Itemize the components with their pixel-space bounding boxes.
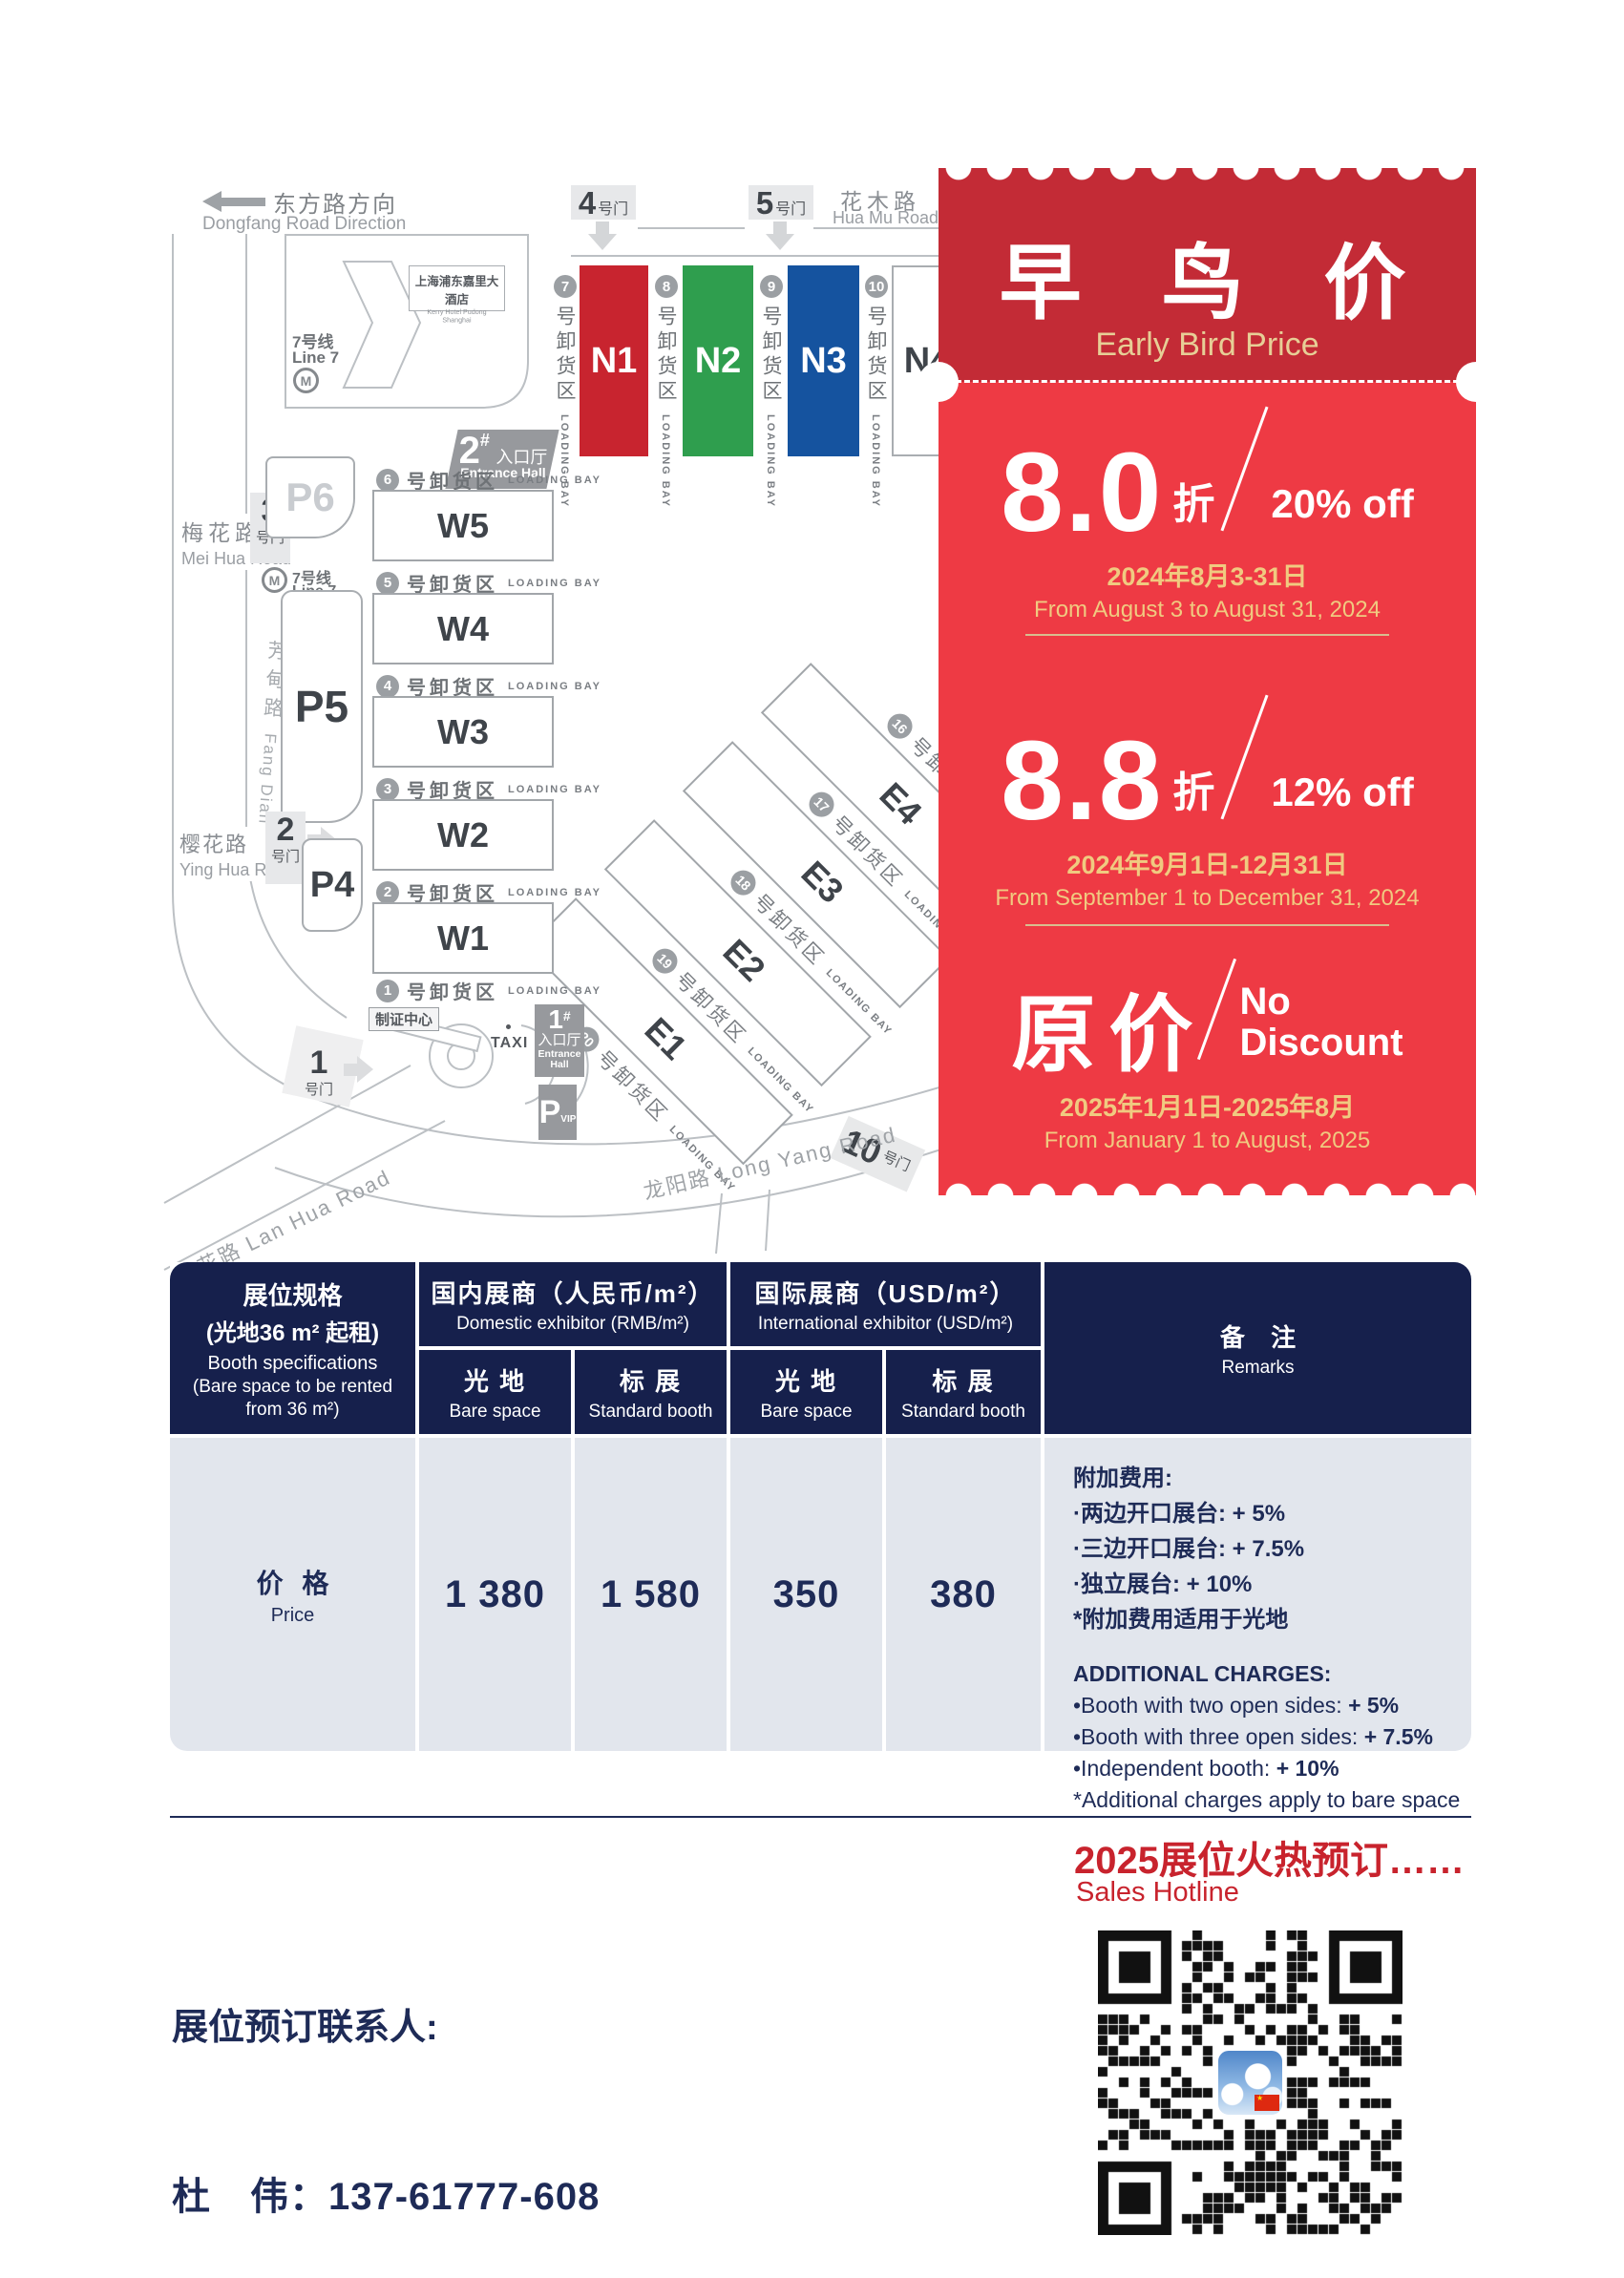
loading-bay-1-row: 1号卸货区LOADING BAY [376, 977, 601, 1004]
tier1-date-en: From August 3 to August 31, 2024 [939, 597, 1476, 623]
tier1-date-zh: 2024年8月3-31日 [939, 556, 1476, 593]
huamu-road-label-en: Hua Mu Road [833, 208, 939, 228]
hall-w3: W3 [372, 696, 554, 768]
hotel-name-en: Kerry Hotel Pudong Shanghai [411, 307, 501, 324]
tier2-off: 12% off [1271, 770, 1413, 815]
coupon-header: 早 鸟 价 Early Bird Price [939, 168, 1476, 382]
price-international-standard: 380 [886, 1438, 1041, 1751]
coupon-divider-1 [1025, 634, 1389, 636]
entrance-1-label-en: Entrance Hall [535, 1049, 584, 1071]
coupon-body: 8.0 折 20% off 2024年8月3-31日 From August 3… [939, 382, 1476, 1195]
entrance-2-label-zh: 入口厅 [496, 448, 547, 467]
china-flag-icon: ★ [1255, 2095, 1279, 2111]
parking-p6: P6 [265, 456, 355, 538]
hall-n3: N3 [788, 265, 859, 456]
tier1-discount: 8.0 [1001, 445, 1163, 540]
bay-8-number: 8 [655, 275, 678, 298]
booth-specs-header: 展位规格 (光地36 m² 起租) Booth specifications (… [170, 1262, 415, 1434]
coupon-notch-left [918, 362, 959, 402]
international-exhibitor-header: 国际展商（USD/m²） International exhibitor (US… [730, 1262, 1041, 1346]
price-domestic-bare: 1 380 [419, 1438, 571, 1751]
dongfang-road-label-en: Dongfang Road Direction [202, 214, 406, 235]
coupon-title-zh: 早 鸟 价 [939, 216, 1476, 335]
dongfang-direction-arrow-icon [202, 191, 265, 212]
tier2-date-en: From September 1 to December 31, 2024 [939, 885, 1476, 912]
coupon-notch-right [1456, 362, 1496, 402]
venue-map: E4 E3 E2 E1 16 17 18 19 20 号卸货区 号卸货区 [170, 170, 945, 1215]
bay-9-number: 9 [760, 275, 783, 298]
line7-label-en: Line 7 [292, 348, 339, 368]
footer-divider [170, 1816, 1471, 1818]
tier2-slash-icon [1221, 695, 1269, 820]
bay-9-label: 号卸货区LOADING BAY [761, 306, 781, 621]
gate-2: 2号门 [265, 812, 306, 884]
taxi-label: TAXI [491, 1035, 528, 1052]
hall-w2: W2 [372, 799, 554, 871]
tier2-discount: 8.8 [1001, 733, 1163, 829]
sales-hotline-subtitle: Sales Hotline [1076, 1877, 1239, 1909]
qr-center-logo: ★ [1215, 2048, 1285, 2118]
domestic-standard-booth-header: 标 展Standard booth [575, 1350, 727, 1434]
tier3-date-zh: 2025年1月1日-2025年8月 [939, 1086, 1476, 1124]
parking-p5: P5 [281, 590, 363, 823]
tier3-label: 原价 [1011, 1000, 1206, 1071]
gate-5: 5 号门 [749, 185, 813, 220]
kerry-hotel-label: 上海浦东嘉里大酒店 Kerry Hotel Pudong Shanghai [409, 265, 505, 311]
gate-5-suffix: 号门 [775, 196, 806, 219]
gate-5-arrow-icon [766, 221, 794, 250]
gate-4-number: 4 [579, 187, 596, 219]
taxi-dot-icon [506, 1024, 511, 1029]
coupon-perforation-line [939, 380, 1476, 383]
note-line: *附加费用适用于光地 [1073, 1602, 1462, 1637]
gate-1-arrow-icon [344, 1056, 373, 1083]
note-line: ·两边开口展台: + 5% [1073, 1496, 1462, 1531]
booking-contact-label: 展位预订联系人: [172, 1997, 438, 2050]
tier-early-bird-2: 8.8 折 12% off 2024年9月1日-12月31日 From Sept… [939, 686, 1476, 912]
note-line: •Booth with three open sides: + 7.5% [1073, 1721, 1462, 1753]
domestic-exhibitor-header: 国内展商（人民币/m²） Domestic exhibitor (RMB/m²) [419, 1262, 727, 1346]
tier1-zhe: 折 [1172, 470, 1214, 531]
gate-4-suffix: 号门 [598, 196, 628, 219]
remarks-body: 附加费用: ·两边开口展台: + 5% ·三边开口展台: + 7.5% ·独立展… [1044, 1438, 1471, 1751]
hotel-name-zh: 上海浦东嘉里大酒店 [410, 271, 504, 307]
tier3-date-en: From January 1 to August, 2025 [939, 1128, 1476, 1154]
note-line: ·三边开口展台: + 7.5% [1073, 1531, 1462, 1567]
vip-parking: PVIP [538, 1085, 577, 1140]
metro-line7-icon: M [293, 368, 319, 393]
remarks-header: 备 注 Remarks [1044, 1262, 1471, 1434]
hall-w5: W5 [372, 490, 554, 561]
bay-10-label: 号卸货区LOADING BAY [866, 306, 886, 621]
coupon-title-en: Early Bird Price [939, 327, 1476, 364]
price-domestic-standard: 1 580 [575, 1438, 727, 1751]
bay-7-number: 7 [554, 275, 577, 298]
hall-n1: N1 [580, 265, 648, 456]
coupon-divider-2 [1025, 924, 1389, 926]
wechat-qr-code: ★ [1098, 1930, 1403, 2235]
badge-center-label: 制证中心 [369, 1007, 439, 1031]
tier1-slash-icon [1221, 407, 1269, 532]
tier2-date-zh: 2024年9月1日-12月31日 [939, 844, 1476, 881]
tier1-off: 20% off [1271, 481, 1413, 527]
tier-early-bird-1: 8.0 折 20% off 2024年8月3-31日 From August 3… [939, 397, 1476, 623]
tier3-no-discount: No Discount [1239, 981, 1403, 1064]
parking-p4: P4 [302, 838, 363, 932]
metro-line7-lower-icon: M [262, 567, 287, 593]
bay-10-number: 10 [865, 275, 888, 298]
hall-w1: W1 [372, 902, 554, 974]
early-bird-coupon: 早 鸟 价 Early Bird Price 8.0 折 20% off 202… [939, 168, 1476, 1195]
hall-n2: N2 [683, 265, 753, 456]
gate-4-arrow-icon [588, 221, 617, 250]
entrance-1-label-zh: 入口厅 [535, 1033, 584, 1049]
pricing-table: 展位规格 (光地36 m² 起租) Booth specifications (… [170, 1262, 1471, 1751]
note-line: •Independent booth: + 10% [1073, 1753, 1462, 1784]
note-line: ·独立展台: + 10% [1073, 1567, 1462, 1602]
tier2-zhe: 折 [1172, 758, 1214, 819]
additional-charges-en-title: ADDITIONAL CHARGES: [1073, 1658, 1462, 1690]
tier-no-discount: 原价 No Discount 2025年1月1日-2025年8月 From Ja… [939, 947, 1476, 1154]
gate-1: 1号门 [298, 1044, 340, 1111]
price-international-bare: 350 [730, 1438, 882, 1751]
contact-phone: 杜 伟：137-61777-608 [172, 2165, 600, 2221]
entrance-hall-1: 1# 入口厅 Entrance Hall [535, 1004, 584, 1077]
gate-5-number: 5 [756, 187, 773, 219]
price-row-label: 价 格 Price [170, 1438, 415, 1751]
international-standard-booth-header: 标 展Standard booth [886, 1350, 1041, 1434]
gate-4: 4 号门 [571, 185, 636, 220]
hall-w4: W4 [372, 593, 554, 664]
additional-charges-zh-title: 附加费用: [1073, 1461, 1462, 1496]
domestic-bare-space-header: 光 地Bare space [419, 1350, 571, 1434]
note-line: *Additional charges apply to bare space [1073, 1784, 1462, 1816]
note-line: •Booth with two open sides: + 5% [1073, 1690, 1462, 1721]
bay-8-label: 号卸货区LOADING BAY [656, 306, 676, 621]
international-bare-space-header: 光 地Bare space [730, 1350, 882, 1434]
